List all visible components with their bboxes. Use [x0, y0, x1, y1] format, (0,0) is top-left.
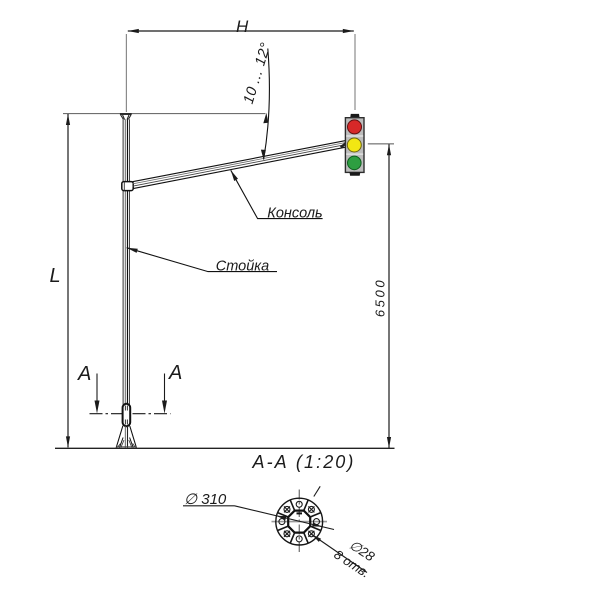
svg-text:6500: 6500: [373, 278, 388, 317]
svg-text:L: L: [50, 265, 61, 287]
svg-text:∅ 310: ∅ 310: [184, 491, 227, 508]
svg-text:А: А: [168, 362, 182, 384]
svg-text:Стойка: Стойка: [216, 259, 269, 275]
svg-text:А: А: [77, 363, 91, 385]
svg-text:Консоль: Консоль: [267, 206, 322, 222]
svg-text:H: H: [236, 17, 249, 36]
svg-text:А-А (1:20): А-А (1:20): [251, 452, 355, 472]
